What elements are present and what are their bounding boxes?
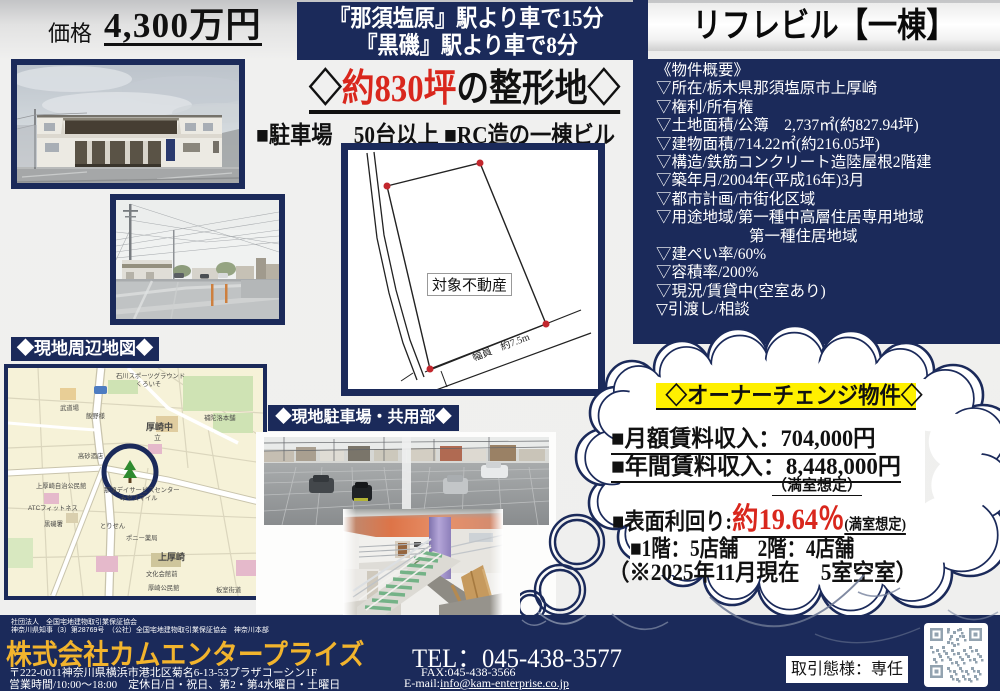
svg-text:石川スポーツグラウンド: 石川スポーツグラウンド [116,371,185,380]
svg-text:補陀洛本舗: 補陀洛本舗 [204,413,236,422]
svg-text:上厚崎: 上厚崎 [158,551,185,562]
svg-text:那須デイサービスセンター: 那須デイサービスセンター [104,485,180,494]
svg-text:文化会館前: 文化会館前 [146,569,177,578]
svg-text:ポニー薬局: ポニー薬局 [126,533,157,542]
svg-text:武道場: 武道場 [60,403,80,412]
svg-text:上厚崎自治公民館: 上厚崎自治公民館 [36,481,86,490]
svg-text:高砂酒店: 高砂酒店 [78,451,103,460]
svg-text:くろいそ: くろいそ [136,380,161,388]
svg-text:ATCフィットネス: ATCフィットネス [28,504,78,512]
svg-text:立: 立 [154,433,161,442]
svg-text:板室街道: 板室街道 [216,585,242,594]
svg-text:厚崎中: 厚崎中 [146,421,173,432]
svg-text:とりせん: とりせん [100,522,125,530]
svg-text:黒磯署: 黒磯署 [44,519,63,528]
svg-text:飯野様: 飯野様 [86,411,106,420]
svg-text:みやスマイル: みやスマイル [120,494,158,502]
svg-text:厚崎公民館: 厚崎公民館 [148,583,179,592]
